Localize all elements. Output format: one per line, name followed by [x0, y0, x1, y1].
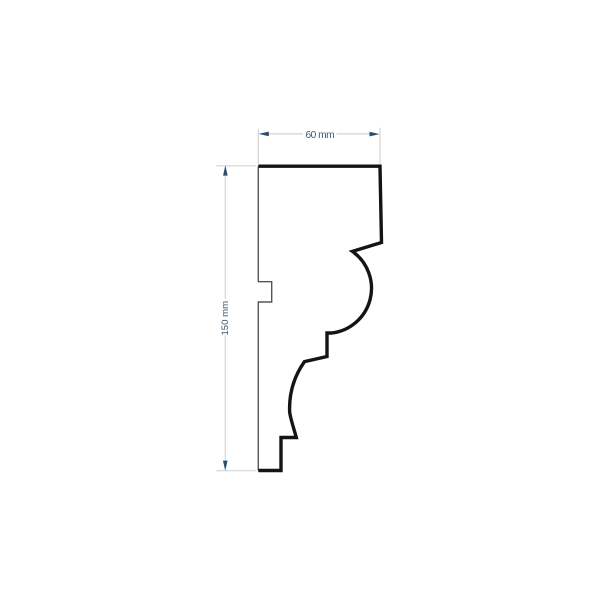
svg-text:60 mm: 60 mm [305, 130, 334, 141]
svg-text:150 mm: 150 mm [220, 301, 231, 336]
